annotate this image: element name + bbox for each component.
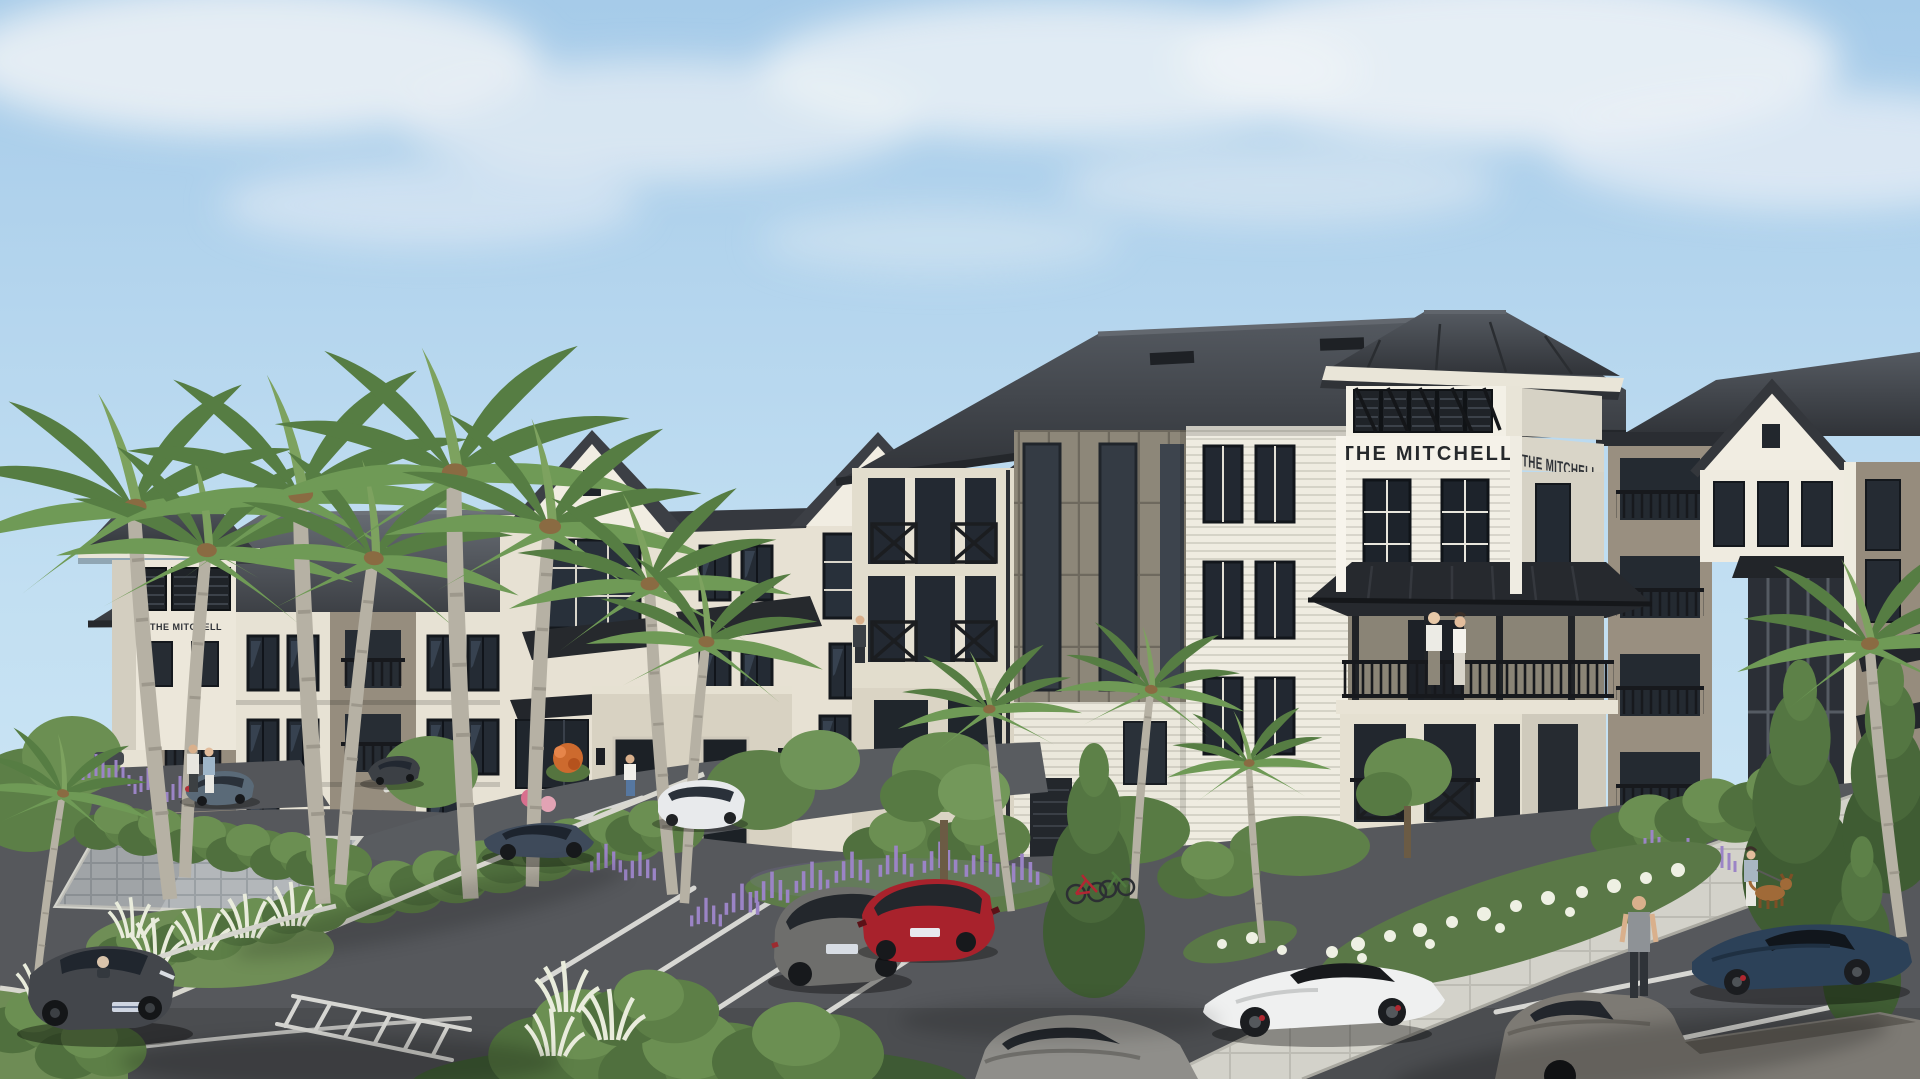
rendering-the-mitchell-community: THE MITCHELL [0, 0, 1920, 1079]
balcony-canopy [1308, 562, 1652, 618]
white-siding-wing [1186, 426, 1348, 870]
cloud [1060, 145, 1500, 225]
tower-balcony [1308, 562, 1652, 714]
tower-sign-front: THE MITCHELL [1341, 443, 1514, 465]
sconce-light [596, 748, 605, 765]
left-tower-sign: THE MITCHELL [150, 622, 222, 632]
cloud [220, 163, 640, 247]
cloud [760, 206, 1120, 274]
